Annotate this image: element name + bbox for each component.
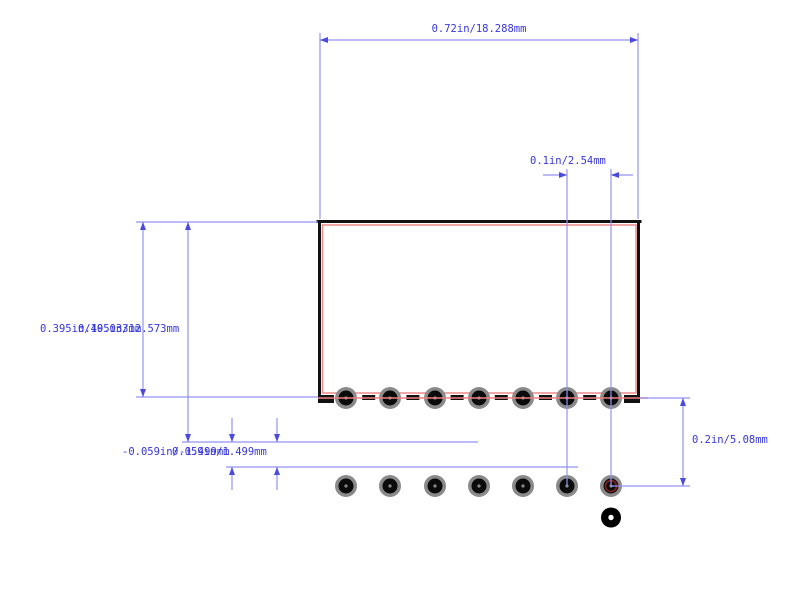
dimension-arrow-up bbox=[185, 222, 191, 230]
pad-center-dot bbox=[344, 484, 347, 487]
body-corner-foot bbox=[318, 395, 334, 403]
footprint-drawing bbox=[0, 0, 800, 590]
dim-label-row1-offset: 0.495in/12.573mm bbox=[78, 323, 179, 336]
dimension-arrow-down bbox=[680, 478, 686, 486]
dimension-arrow-right bbox=[559, 172, 567, 178]
dimension-arrow-down bbox=[274, 434, 280, 442]
footprint-drawing-canvas: 0.72in/18.288mm 0.1in/2.54mm 0.395in/10.… bbox=[0, 0, 800, 590]
dimension-arrow-down bbox=[140, 389, 146, 397]
dimension-arrow-down bbox=[185, 434, 191, 442]
dimension-arrow-up bbox=[229, 467, 235, 475]
pad-center-dot bbox=[521, 484, 524, 487]
dimension-arrow-left bbox=[611, 172, 619, 178]
pad-center-dot bbox=[477, 484, 480, 487]
dimension-arrow-up bbox=[680, 398, 686, 406]
mounting-hole-center bbox=[608, 515, 613, 520]
dimension-arrow-left bbox=[320, 37, 328, 43]
pad-center-dot bbox=[433, 484, 436, 487]
dimension-arrow-up bbox=[140, 222, 146, 230]
dim-label-offset-positive: 0.059in/1.499mm bbox=[172, 446, 267, 459]
dim-label-row-spacing: 0.2in/5.08mm bbox=[692, 434, 768, 447]
body-corner-foot bbox=[624, 395, 640, 403]
dimension-arrow-up bbox=[274, 467, 280, 475]
silkscreen-outline bbox=[323, 225, 637, 393]
dim-label-pitch: 0.1in/2.54mm bbox=[530, 155, 606, 168]
dimension-arrow-right bbox=[630, 37, 638, 43]
dim-label-top-width: 0.72in/18.288mm bbox=[432, 23, 527, 36]
dimension-arrow-down bbox=[229, 434, 235, 442]
pad-center-dot bbox=[388, 484, 391, 487]
